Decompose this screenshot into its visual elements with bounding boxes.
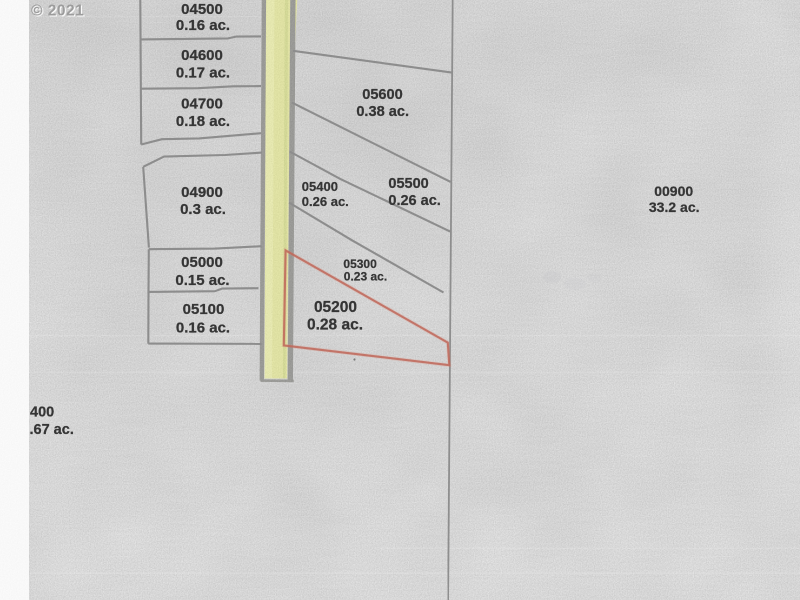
svg-text:0.26 ac.: 0.26 ac. <box>388 193 440 209</box>
svg-text:05100: 05100 <box>183 301 225 318</box>
svg-text:0.18 ac.: 0.18 ac. <box>176 113 230 130</box>
svg-text:0.23 ac.: 0.23 ac. <box>344 270 387 284</box>
svg-text:0.16 ac.: 0.16 ac. <box>176 320 230 337</box>
svg-text:05500: 05500 <box>388 176 428 192</box>
svg-text:.67 ac.: .67 ac. <box>30 422 74 438</box>
svg-text:0.16 ac.: 0.16 ac. <box>176 17 230 34</box>
svg-text:04600: 04600 <box>181 47 223 64</box>
svg-text:04500: 04500 <box>181 1 223 18</box>
svg-text:00900: 00900 <box>654 183 693 199</box>
svg-text:© 2021: © 2021 <box>31 3 84 20</box>
svg-text:0.3 ac.: 0.3 ac. <box>180 201 226 218</box>
svg-text:400: 400 <box>30 405 54 421</box>
svg-text:05200: 05200 <box>314 299 357 316</box>
svg-text:04700: 04700 <box>181 96 223 113</box>
svg-text:33.2 ac.: 33.2 ac. <box>649 199 700 215</box>
svg-text:05400: 05400 <box>302 179 338 194</box>
svg-text:0.17 ac.: 0.17 ac. <box>176 64 230 81</box>
svg-text:0.26 ac.: 0.26 ac. <box>302 194 349 209</box>
svg-text:04900: 04900 <box>181 184 223 201</box>
svg-text:0.28 ac.: 0.28 ac. <box>307 316 363 333</box>
svg-text:0.15 ac.: 0.15 ac. <box>175 272 229 289</box>
svg-text:05000: 05000 <box>181 254 223 271</box>
svg-text:05600: 05600 <box>362 87 403 103</box>
svg-text:0.38 ac.: 0.38 ac. <box>356 104 409 120</box>
